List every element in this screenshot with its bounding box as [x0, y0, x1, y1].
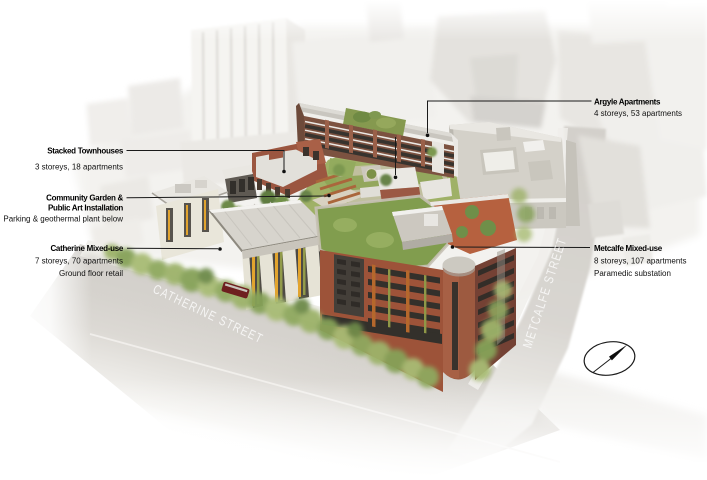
svg-text:Public Art Installation: Public Art Installation	[48, 204, 123, 213]
svg-text:Ground floor retail: Ground floor retail	[59, 269, 123, 278]
svg-text:8 storeys, 107 apartments: 8 storeys, 107 apartments	[594, 256, 687, 265]
svg-text:7 storeys, 70 apartments: 7 storeys, 70 apartments	[35, 256, 123, 265]
svg-text:Parking & geothermal plant bel: Parking & geothermal plant below	[3, 215, 123, 224]
svg-text:Community Garden &: Community Garden &	[46, 194, 123, 203]
svg-text:Metcalfe Mixed-use: Metcalfe Mixed-use	[594, 244, 663, 253]
svg-text:Catherine Mixed-use: Catherine Mixed-use	[50, 244, 123, 253]
svg-text:Paramedic substation: Paramedic substation	[594, 269, 671, 278]
svg-text:4 storeys, 53 apartments: 4 storeys, 53 apartments	[594, 109, 682, 118]
svg-text:Stacked Townhouses: Stacked Townhouses	[47, 147, 124, 156]
svg-text:3 storeys, 18 apartments: 3 storeys, 18 apartments	[35, 163, 123, 172]
svg-text:Argyle Apartments: Argyle Apartments	[594, 97, 661, 106]
